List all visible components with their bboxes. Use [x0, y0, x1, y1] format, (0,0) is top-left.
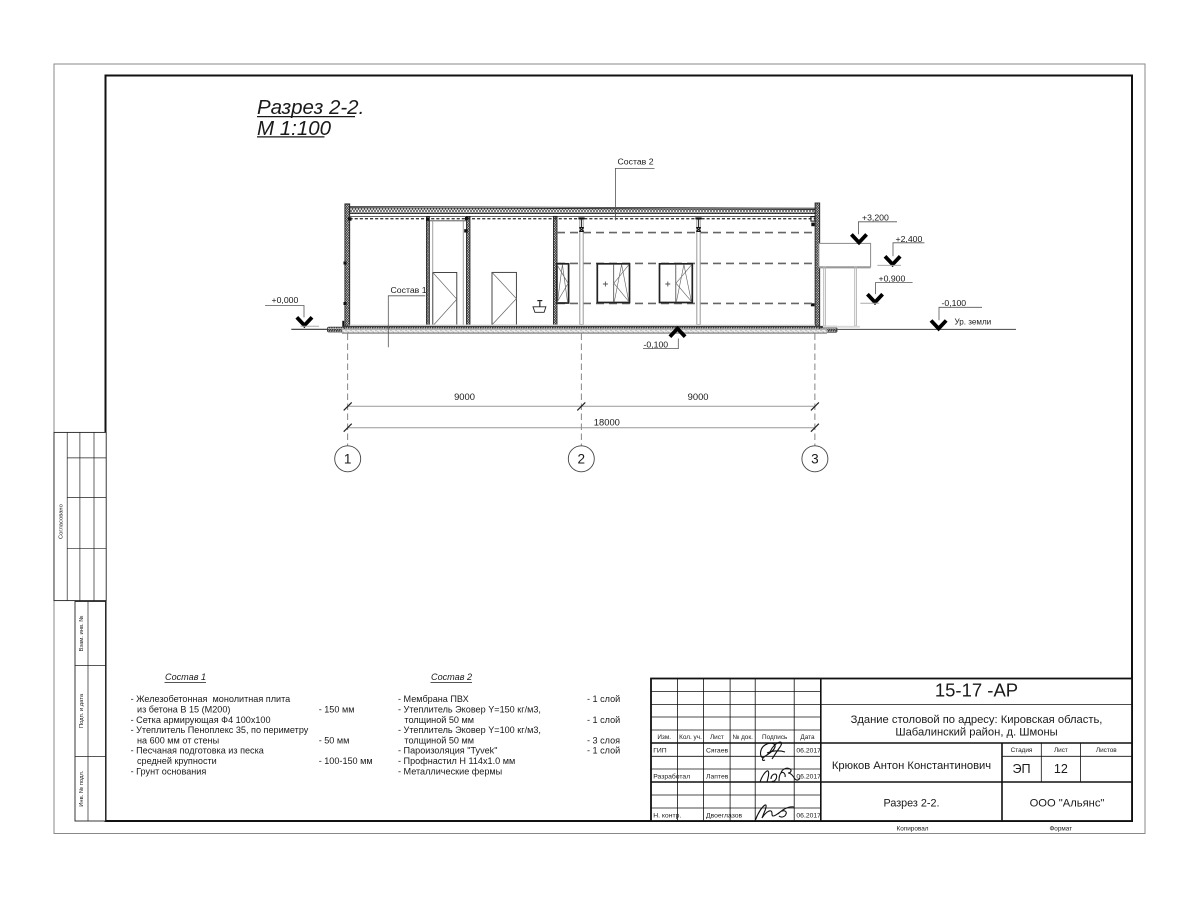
svg-text:ЭП: ЭП [1012, 762, 1030, 776]
svg-text:Копировал: Копировал [896, 826, 928, 833]
svg-text:Разрез 2-2.: Разрез 2-2. [257, 96, 364, 119]
svg-text:Изм.: Изм. [657, 734, 671, 741]
svg-text:12: 12 [1054, 762, 1068, 776]
svg-text:9000: 9000 [454, 391, 475, 402]
svg-text:+0,000: +0,000 [272, 295, 299, 305]
svg-text:Здание столовой по адресу: Кир: Здание столовой по адресу: Кировская обл… [851, 714, 1103, 726]
svg-text:Двоеглазов: Двоеглазов [706, 813, 743, 820]
svg-text:Шабалинский район, д. Шмоны: Шабалинский район, д. Шмоны [895, 726, 1057, 738]
svg-text:06.2017: 06.2017 [796, 748, 821, 755]
svg-text:Сягаев: Сягаев [706, 748, 728, 755]
svg-text:- 1 слой: - 1 слой [587, 694, 620, 704]
svg-text:Ур. земли: Ур. земли [955, 317, 992, 326]
svg-text:Подп. и дата: Подп. и дата [79, 693, 85, 728]
svg-text:18000: 18000 [594, 417, 620, 428]
svg-text:Лист: Лист [1054, 747, 1068, 754]
svg-text:Дата: Дата [800, 734, 815, 741]
svg-text:- 3 слоя: - 3 слоя [587, 735, 620, 745]
svg-text:ООО "Альянс": ООО "Альянс" [1030, 798, 1105, 810]
svg-text:Инв. № подл.: Инв. № подл. [79, 770, 85, 806]
svg-text:- Профнастил Н 114х1.0 мм: - Профнастил Н 114х1.0 мм [398, 756, 515, 766]
svg-text:Взам. инв. №: Взам. инв. № [79, 616, 85, 652]
svg-text:№ док.: № док. [732, 734, 753, 741]
svg-text:Лист: Лист [710, 734, 724, 741]
svg-text:- Утеплитель Эковер Y=150 кг/м: - Утеплитель Эковер Y=150 кг/м3, [398, 705, 541, 715]
svg-text:Лаптев: Лаптев [706, 774, 729, 781]
svg-text:на 600 мм от стены: на 600 мм от стены [137, 735, 219, 745]
svg-text:9000: 9000 [688, 391, 709, 402]
svg-text:- 150 мм: - 150 мм [319, 705, 355, 715]
svg-text:- 1 слой: - 1 слой [587, 746, 620, 756]
svg-text:06.2017: 06.2017 [796, 813, 821, 820]
svg-text:из бетона В 15 (М200): из бетона В 15 (М200) [137, 705, 230, 715]
svg-text:1: 1 [344, 452, 352, 467]
svg-text:- Металлические фермы: - Металлические фермы [398, 766, 502, 776]
svg-text:- Пароизоляция "Tyvek": - Пароизоляция "Tyvek" [398, 746, 497, 756]
svg-text:толщиной 50 мм: толщиной 50 мм [404, 735, 474, 745]
svg-text:- Железобетонная монолитная п: - Железобетонная монолитная плита [131, 694, 292, 704]
svg-text:Н. контр.: Н. контр. [653, 813, 681, 820]
svg-text:- Утеплитель Эковер Y=100 кг/м: - Утеплитель Эковер Y=100 кг/м3, [398, 725, 541, 735]
svg-text:- 50 мм: - 50 мм [319, 735, 350, 745]
svg-text:+3,200: +3,200 [862, 213, 889, 223]
svg-text:Состав 1: Состав 1 [165, 672, 206, 682]
svg-text:средней крупности: средней крупности [137, 756, 217, 766]
svg-text:Кол. уч.: Кол. уч. [679, 734, 702, 741]
svg-text:Крюков Антон Константинович: Крюков Антон Константинович [832, 760, 991, 772]
svg-text:+2,400: +2,400 [896, 234, 923, 244]
svg-text:Подпись: Подпись [762, 734, 788, 741]
svg-text:Состав 2: Состав 2 [618, 157, 654, 167]
svg-text:- Грунт основания: - Грунт основания [131, 766, 207, 776]
svg-text:06.2017: 06.2017 [796, 774, 821, 781]
svg-text:- 1 слой: - 1 слой [587, 715, 620, 725]
svg-text:ГИП: ГИП [653, 748, 667, 755]
svg-text:- Утеплитель Пеноплекс 35, по: - Утеплитель Пеноплекс 35, по периметру [131, 725, 309, 735]
svg-text:Разработал: Разработал [653, 773, 690, 781]
svg-text:3: 3 [811, 452, 819, 467]
svg-text:толщиной 50 мм: толщиной 50 мм [404, 715, 474, 725]
svg-text:Состав 1: Состав 1 [391, 285, 427, 295]
svg-text:-0,100: -0,100 [644, 339, 669, 349]
svg-text:Согласовано: Согласовано [59, 504, 65, 539]
svg-text:- Сетка армирующая Ф4 100х100: - Сетка армирующая Ф4 100х100 [131, 715, 271, 725]
svg-text:Листов: Листов [1096, 747, 1117, 754]
svg-text:15-17 -АР: 15-17 -АР [935, 680, 1018, 701]
svg-text:2: 2 [578, 452, 586, 467]
svg-text:Разрез 2-2.: Разрез 2-2. [883, 798, 939, 810]
svg-text:Стадия: Стадия [1011, 747, 1033, 754]
svg-text:- 100-150 мм: - 100-150 мм [319, 756, 373, 766]
svg-text:Состав 2: Состав 2 [431, 672, 472, 682]
svg-text:Формат: Формат [1049, 826, 1072, 833]
svg-text:+0,900: +0,900 [879, 273, 906, 283]
svg-text:- Песчаная подготовка из песка: - Песчаная подготовка из песка [131, 746, 265, 756]
svg-text:- Мембрана ПВХ: - Мембрана ПВХ [398, 694, 469, 704]
svg-text:-0,100: -0,100 [942, 298, 967, 308]
